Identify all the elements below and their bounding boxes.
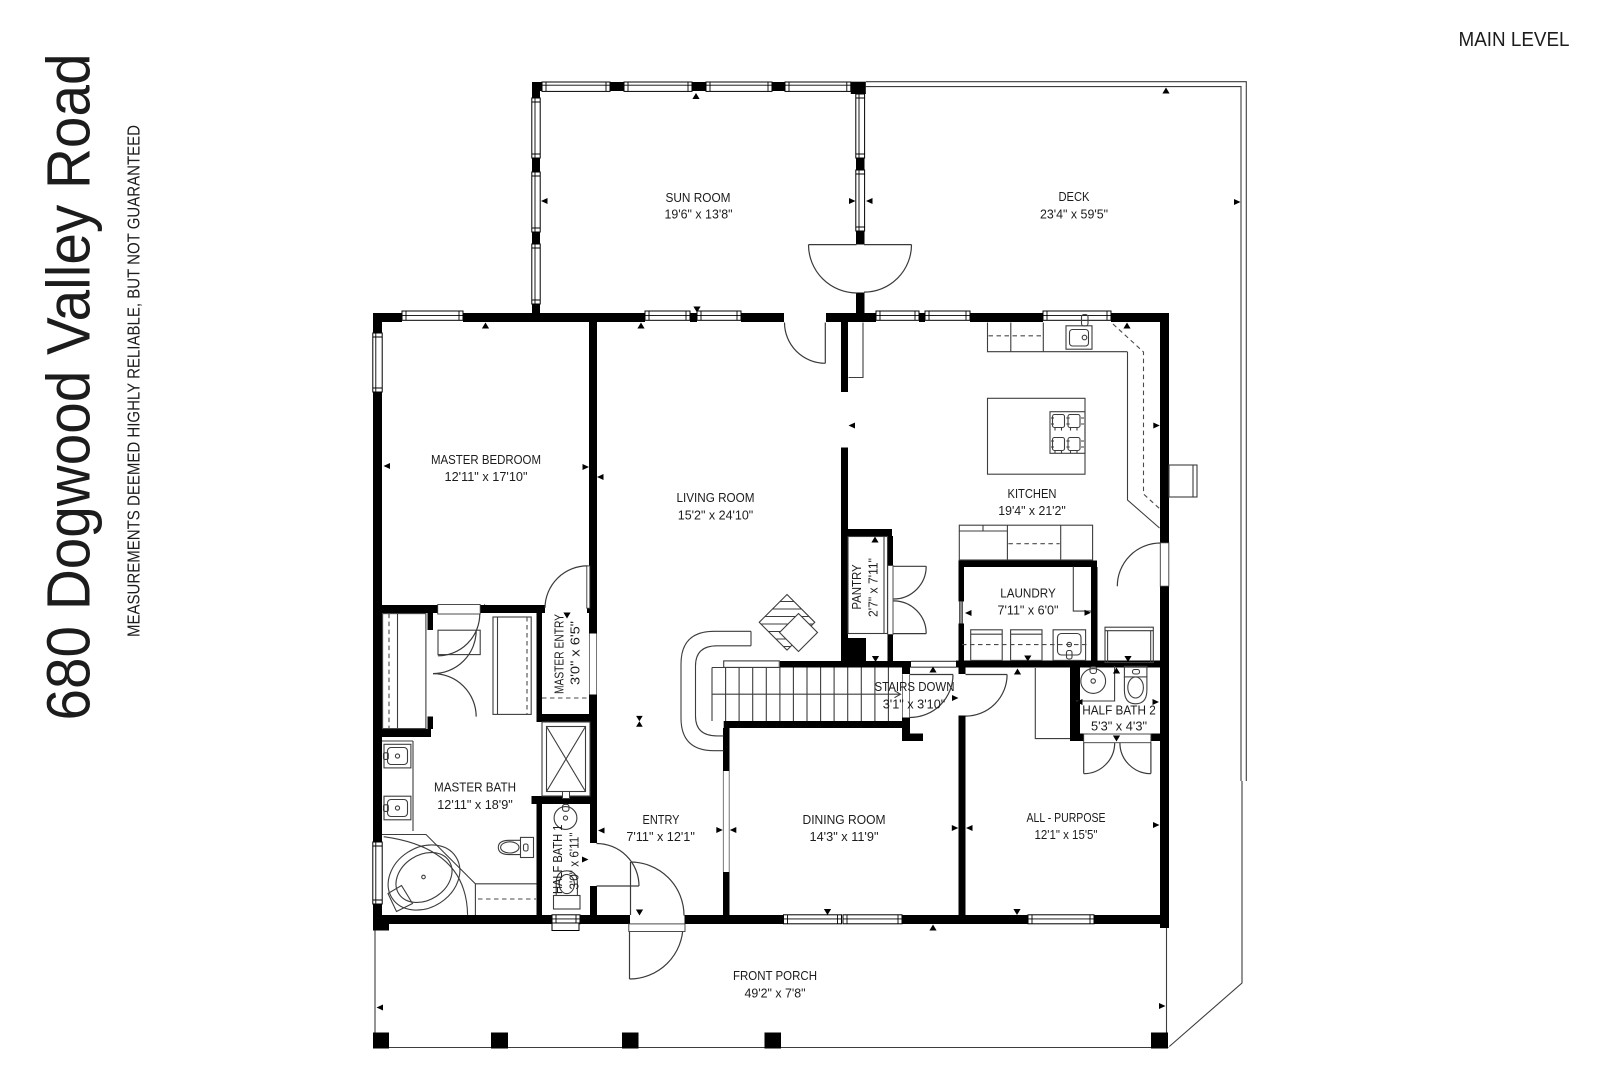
svg-text:3'0" x 6'11": 3'0" x 6'11" bbox=[567, 832, 582, 889]
svg-text:HALF BATH 1: HALF BATH 1 bbox=[550, 825, 565, 895]
svg-text:LAUNDRY: LAUNDRY bbox=[1000, 586, 1056, 601]
svg-text:3'0" x 6'5": 3'0" x 6'5" bbox=[568, 621, 583, 685]
svg-text:PANTRY: PANTRY bbox=[849, 564, 864, 609]
svg-text:MEASUREMENTS DEEMED HIGHLY REL: MEASUREMENTS DEEMED HIGHLY RELIABLE, BUT… bbox=[124, 125, 144, 637]
svg-text:MAIN LEVEL: MAIN LEVEL bbox=[1459, 29, 1570, 51]
svg-text:MASTER BATH: MASTER BATH bbox=[434, 780, 516, 795]
svg-text:KITCHEN: KITCHEN bbox=[1008, 486, 1057, 501]
svg-text:23'4" x 59'5": 23'4" x 59'5" bbox=[1040, 206, 1108, 221]
svg-text:MASTER ENTRY: MASTER ENTRY bbox=[552, 614, 567, 694]
svg-text:DECK: DECK bbox=[1059, 189, 1090, 204]
svg-text:ALL - PURPOSE: ALL - PURPOSE bbox=[1027, 810, 1106, 825]
svg-text:MASTER BEDROOM: MASTER BEDROOM bbox=[431, 452, 541, 467]
svg-text:5'3" x 4'3": 5'3" x 4'3" bbox=[1091, 719, 1147, 734]
svg-text:12'11" x 18'9": 12'11" x 18'9" bbox=[437, 797, 513, 812]
svg-text:LIVING ROOM: LIVING ROOM bbox=[677, 490, 755, 505]
svg-text:2'7" x 7'11": 2'7" x 7'11" bbox=[866, 558, 881, 617]
svg-text:12'11" x 17'10": 12'11" x 17'10" bbox=[445, 469, 528, 484]
svg-text:DINING ROOM: DINING ROOM bbox=[803, 812, 886, 827]
svg-text:7'11" x 6'0": 7'11" x 6'0" bbox=[998, 603, 1059, 618]
svg-text:ENTRY: ENTRY bbox=[643, 812, 680, 827]
svg-text:STAIRS DOWN: STAIRS DOWN bbox=[875, 679, 955, 694]
svg-text:3'1" x 3'10": 3'1" x 3'10" bbox=[883, 696, 946, 711]
svg-text:19'6" x 13'8": 19'6" x 13'8" bbox=[665, 207, 733, 222]
svg-text:15'2" x 24'10": 15'2" x 24'10" bbox=[678, 508, 754, 523]
svg-text:SUN ROOM: SUN ROOM bbox=[666, 190, 731, 205]
svg-text:7'11" x 12'1": 7'11" x 12'1" bbox=[626, 829, 695, 844]
svg-text:HALF BATH 2: HALF BATH 2 bbox=[1082, 703, 1156, 718]
svg-text:19'4" x 21'2": 19'4" x 21'2" bbox=[998, 503, 1066, 518]
svg-text:14'3" x 11'9": 14'3" x 11'9" bbox=[810, 829, 879, 844]
svg-text:FRONT PORCH: FRONT PORCH bbox=[733, 968, 817, 983]
svg-text:680 Dogwood Valley Road: 680 Dogwood Valley Road bbox=[35, 54, 103, 721]
svg-text:49'2" x 7'8": 49'2" x 7'8" bbox=[745, 985, 806, 1000]
svg-text:12'1" x 15'5": 12'1" x 15'5" bbox=[1035, 827, 1098, 842]
